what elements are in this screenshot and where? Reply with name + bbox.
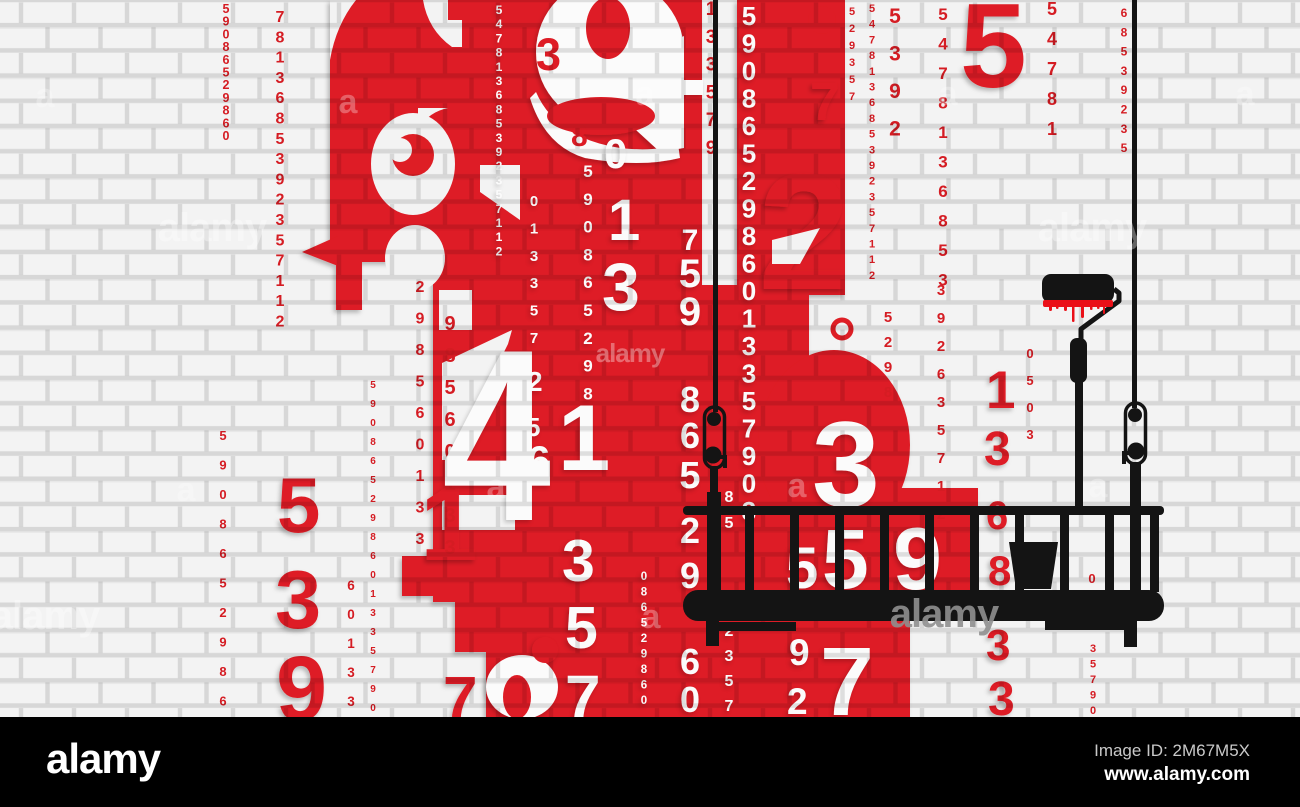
svg-text:a: a (36, 77, 56, 115)
svg-text:alamy: alamy (158, 206, 268, 250)
svg-text:a: a (177, 471, 197, 509)
svg-text:a: a (487, 468, 507, 506)
svg-text:alamy: alamy (46, 735, 162, 782)
svg-text:a: a (636, 75, 656, 113)
svg-text:alamy: alamy (596, 338, 666, 368)
svg-text:a: a (1236, 75, 1256, 113)
svg-text:Image ID: 2M67M5X: Image ID: 2M67M5X (1094, 741, 1250, 760)
svg-text:alamy: alamy (1038, 206, 1148, 250)
svg-text:a: a (939, 75, 959, 113)
svg-text:alamy: alamy (890, 592, 1000, 636)
svg-text:a: a (339, 83, 359, 121)
svg-text:a: a (642, 598, 662, 636)
svg-text:www.alamy.com: www.alamy.com (1103, 764, 1250, 785)
svg-text:a: a (788, 467, 808, 505)
svg-text:alamy: alamy (0, 594, 101, 638)
svg-text:a: a (1089, 467, 1109, 505)
